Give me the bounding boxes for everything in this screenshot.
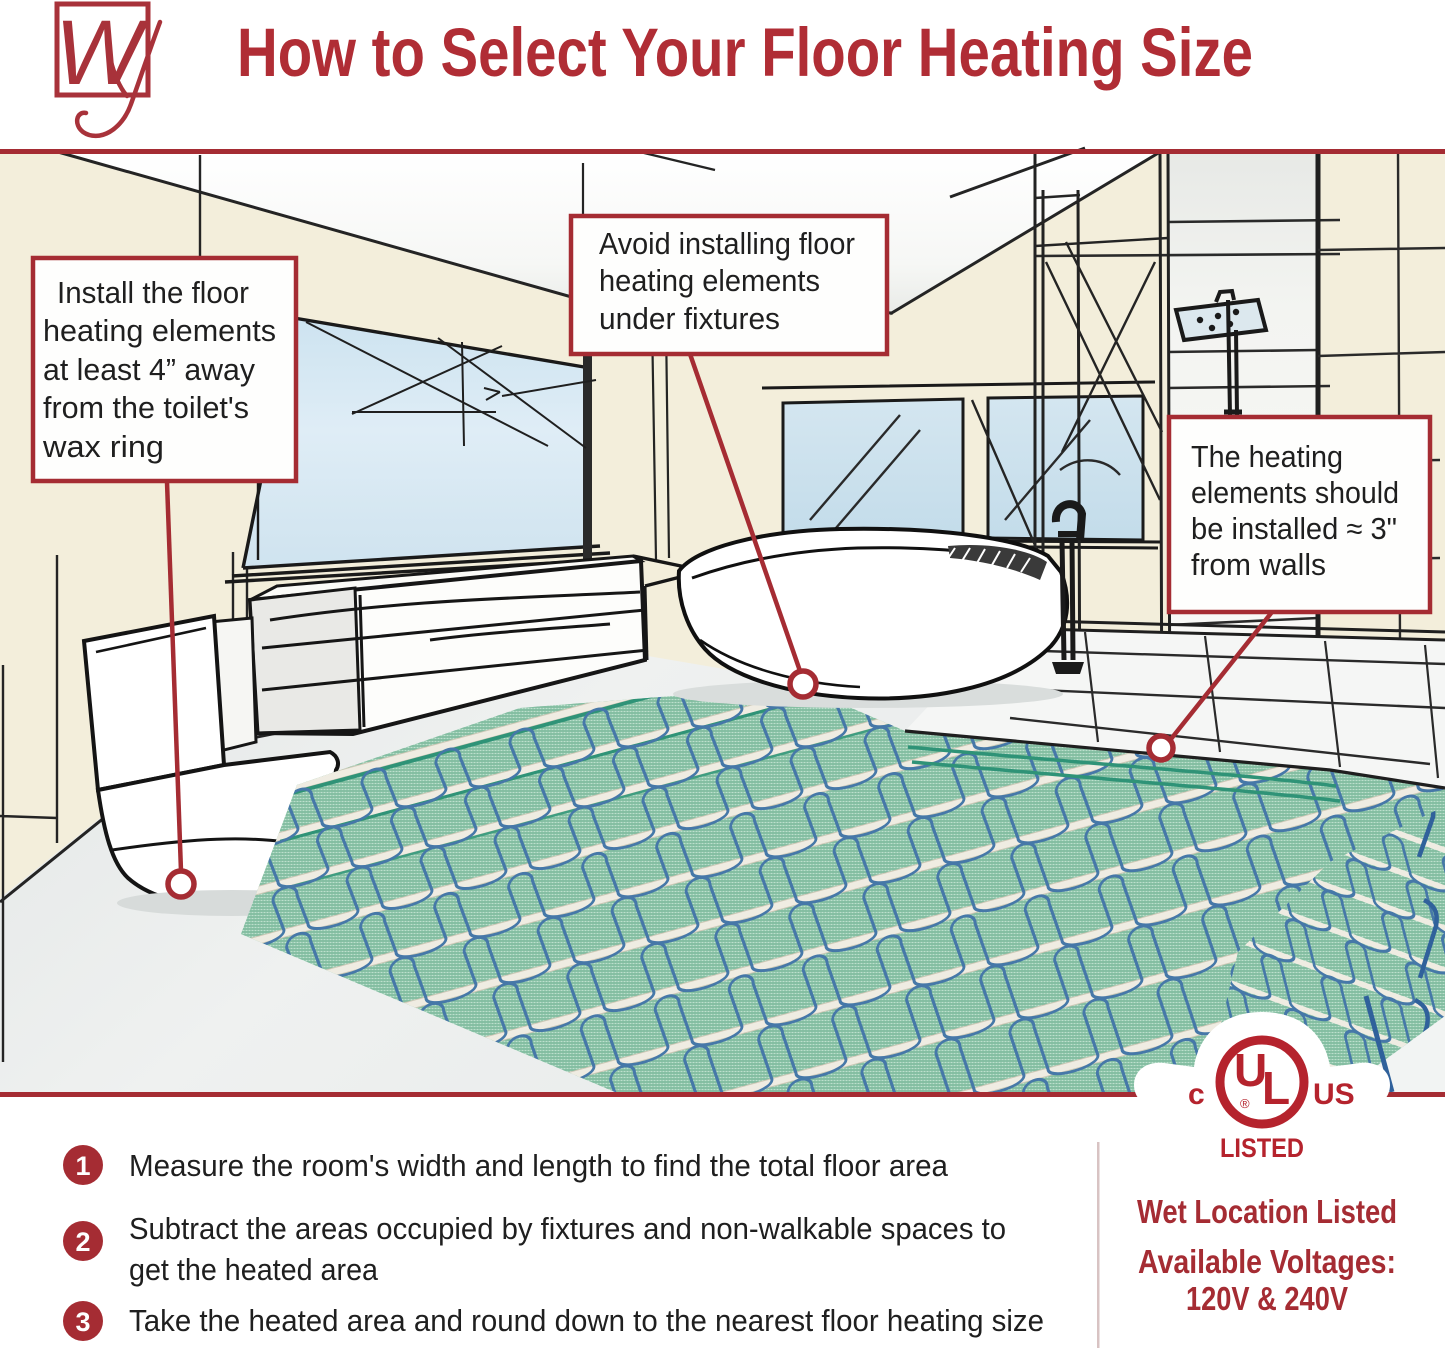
- svg-text:US: US: [1313, 1078, 1355, 1111]
- svg-text:Subtract the areas occupied by: Subtract the areas occupied by fixtures …: [129, 1211, 1006, 1246]
- svg-text:How to Select Your Floor Heati: How to Select Your Floor Heating Size: [237, 14, 1253, 91]
- svg-text:L: L: [1262, 1062, 1290, 1114]
- svg-text:2: 2: [75, 1227, 90, 1257]
- svg-text:LISTED: LISTED: [1220, 1133, 1304, 1163]
- svg-text:Available Voltages:: Available Voltages:: [1138, 1243, 1396, 1280]
- svg-text:Wet Location Listed: Wet Location Listed: [1137, 1193, 1397, 1230]
- svg-text:1: 1: [75, 1151, 90, 1181]
- svg-text:®: ®: [1240, 1096, 1250, 1111]
- svg-text:3: 3: [75, 1307, 90, 1337]
- svg-text:120V & 240V: 120V & 240V: [1186, 1280, 1348, 1317]
- svg-text:Take the heated area and round: Take the heated area and round down to t…: [129, 1303, 1044, 1338]
- svg-text:Measure the room's width and l: Measure the room's width and length to f…: [129, 1148, 949, 1183]
- svg-text:get the heated area: get the heated area: [129, 1252, 379, 1287]
- svg-text:c: c: [1188, 1078, 1205, 1111]
